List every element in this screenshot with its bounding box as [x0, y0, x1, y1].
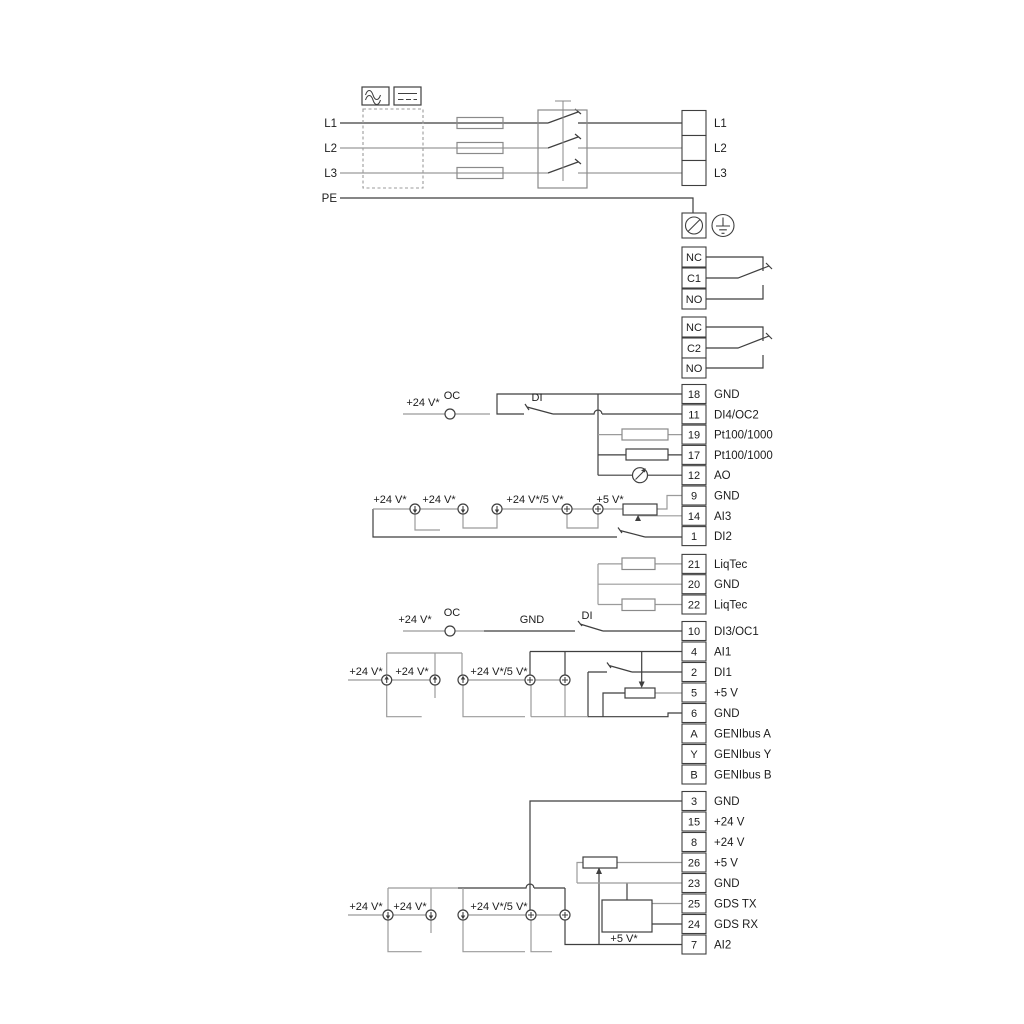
- power-in-l3-label: L3: [324, 168, 337, 180]
- power-in-pe-label: PE: [322, 193, 338, 205]
- relay1-c: C1: [687, 273, 701, 285]
- t7-num: 7: [691, 940, 697, 952]
- power-out-l3-label: L3: [714, 168, 727, 180]
- relay1-nc: NC: [686, 252, 702, 264]
- t5-label: +5 V: [714, 688, 738, 700]
- oc-label-mid: OC: [444, 607, 461, 619]
- t21-label: LiqTec: [714, 559, 747, 571]
- a-v24-label-1: +24 V*: [373, 494, 407, 506]
- t1-num: 1: [691, 531, 697, 543]
- gds-sensor-box: [602, 900, 652, 932]
- resistor-symbol-pt100-17: [626, 449, 668, 460]
- t14-label: AI3: [714, 511, 731, 523]
- tA-label: GENIbus A: [714, 729, 771, 741]
- a-v24v5-label: +24 V*/5 V*: [506, 494, 564, 506]
- power-out-l2-label: L2: [714, 143, 727, 155]
- gnd18-di4-wiring: [497, 394, 682, 475]
- t24-num: 24: [688, 919, 700, 931]
- t8-label: +24 V: [714, 837, 745, 849]
- relay1-contact-symbol: [706, 257, 772, 299]
- power-in-l2-label: L2: [324, 143, 337, 155]
- b-v24v5-label: +24 V*/5 V*: [470, 666, 528, 678]
- wiring-diagram-page: L1 L2 L3 PE L1 L2 L3 NC C1 NO NC C2 NO 1…: [0, 0, 1024, 1024]
- t9-num: 9: [691, 491, 697, 503]
- t1-label: DI2: [714, 531, 732, 543]
- tB-num: B: [690, 770, 697, 782]
- a-v24-label-2: +24 V*: [422, 494, 456, 506]
- t2-label: DI1: [714, 667, 732, 679]
- resistor-symbol-liqtec-22: [622, 599, 655, 611]
- c-v24-label-2: +24 V*: [393, 901, 427, 913]
- earth-ground-bars: [716, 218, 730, 234]
- t5-num: 5: [691, 688, 697, 700]
- relay2-nc: NC: [686, 322, 702, 334]
- t26-label: +5 V: [714, 858, 738, 870]
- t22-num: 22: [688, 600, 700, 612]
- tY-label: GENIbus Y: [714, 749, 772, 761]
- t17-num: 17: [688, 450, 700, 462]
- v24-label-top: +24 V*: [406, 397, 440, 409]
- t25-num: 25: [688, 899, 700, 911]
- relay2-contact-symbol: [706, 327, 772, 368]
- power-out-l1-label: L1: [714, 118, 727, 130]
- t3-label: GND: [714, 796, 740, 808]
- a-v5-label: +5 V*: [596, 494, 624, 506]
- ac-symbol-box: [362, 87, 389, 105]
- t25-label: GDS TX: [714, 899, 757, 911]
- tB-label: GENIbus B: [714, 770, 772, 782]
- potentiometer-symbol-ai1: [625, 688, 655, 698]
- b-v24-label-2: +24 V*: [395, 666, 429, 678]
- t6-num: 6: [691, 708, 697, 720]
- wiring-diagram: L1 L2 L3 PE L1 L2 L3 NC C1 NO NC C2 NO 1…: [0, 0, 1024, 1024]
- c-v24-label-1: +24 V*: [349, 901, 383, 913]
- tA-num: A: [690, 729, 698, 741]
- ai1-network-wires: [348, 653, 682, 717]
- resistor-symbol-liqtec-21: [622, 558, 655, 570]
- t17-label: Pt100/1000: [714, 450, 773, 462]
- t3-num: 3: [691, 796, 697, 808]
- t18-label: GND: [714, 389, 740, 401]
- t4-label: AI1: [714, 647, 731, 659]
- t4-num: 4: [691, 647, 697, 659]
- gnd-label-mid: GND: [520, 614, 545, 626]
- t15-label: +24 V: [714, 817, 745, 829]
- dc-symbol-box: [394, 87, 421, 105]
- pot-wiper-arrow-ai1: [639, 682, 645, 689]
- t20-label: GND: [714, 579, 740, 591]
- t10-num: 10: [688, 626, 700, 638]
- tY-num: Y: [690, 749, 698, 761]
- oc2-output-icon: [445, 409, 455, 419]
- relay2-no: NO: [686, 363, 703, 375]
- t22-label: LiqTec: [714, 600, 747, 612]
- t7-label: AI2: [714, 940, 731, 952]
- c-v24v5-label: +24 V*/5 V*: [470, 901, 528, 913]
- v24-label-mid: +24 V*: [398, 614, 432, 626]
- t10-label: DI3/OC1: [714, 626, 759, 638]
- t11-label: DI4/OC2: [714, 409, 759, 421]
- t24-label: GDS RX: [714, 919, 758, 931]
- b-v24-label-1: +24 V*: [349, 666, 383, 678]
- potentiometer-symbol-ai2: [583, 857, 617, 868]
- t12-num: 12: [688, 470, 700, 482]
- ai1-di1-wiring: [530, 652, 682, 717]
- t21-num: 21: [688, 559, 700, 571]
- di-label-top: DI: [532, 392, 543, 404]
- t23-num: 23: [688, 878, 700, 890]
- t6-label: GND: [714, 708, 740, 720]
- t26-num: 26: [688, 858, 700, 870]
- t2-num: 2: [691, 667, 697, 679]
- potentiometer-symbol-ai3: [623, 504, 657, 515]
- t23-label: GND: [714, 878, 740, 890]
- c-v5-label: +5 V*: [610, 933, 638, 945]
- t19-num: 19: [688, 430, 700, 442]
- t12-label: AO: [714, 470, 731, 482]
- di-label-mid: DI: [582, 610, 593, 622]
- resistor-symbol-pt100-19: [622, 429, 668, 440]
- relay1-no: NO: [686, 294, 703, 306]
- t14-num: 14: [688, 511, 700, 523]
- power-in-l1-label: L1: [324, 118, 337, 130]
- di3-oc1-switch-wiring: [484, 621, 682, 631]
- t18-num: 18: [688, 389, 700, 401]
- t11-num: 11: [688, 409, 699, 421]
- oc-label-top: OC: [444, 390, 461, 402]
- power-wire-l1: [340, 109, 682, 123]
- pe-wire: [340, 198, 693, 213]
- oc1-output-icon: [445, 626, 455, 636]
- breaker-blades-l2-l3: [548, 134, 581, 173]
- relay2-c: C2: [687, 343, 701, 355]
- t8-num: 8: [691, 837, 697, 849]
- t20-num: 20: [688, 579, 700, 591]
- power-wires-l2-l3: [340, 148, 682, 173]
- mains-output-terminal-block: [682, 111, 706, 186]
- t19-label: Pt100/1000: [714, 430, 773, 442]
- t15-num: 15: [688, 817, 700, 829]
- t9-label: GND: [714, 491, 740, 503]
